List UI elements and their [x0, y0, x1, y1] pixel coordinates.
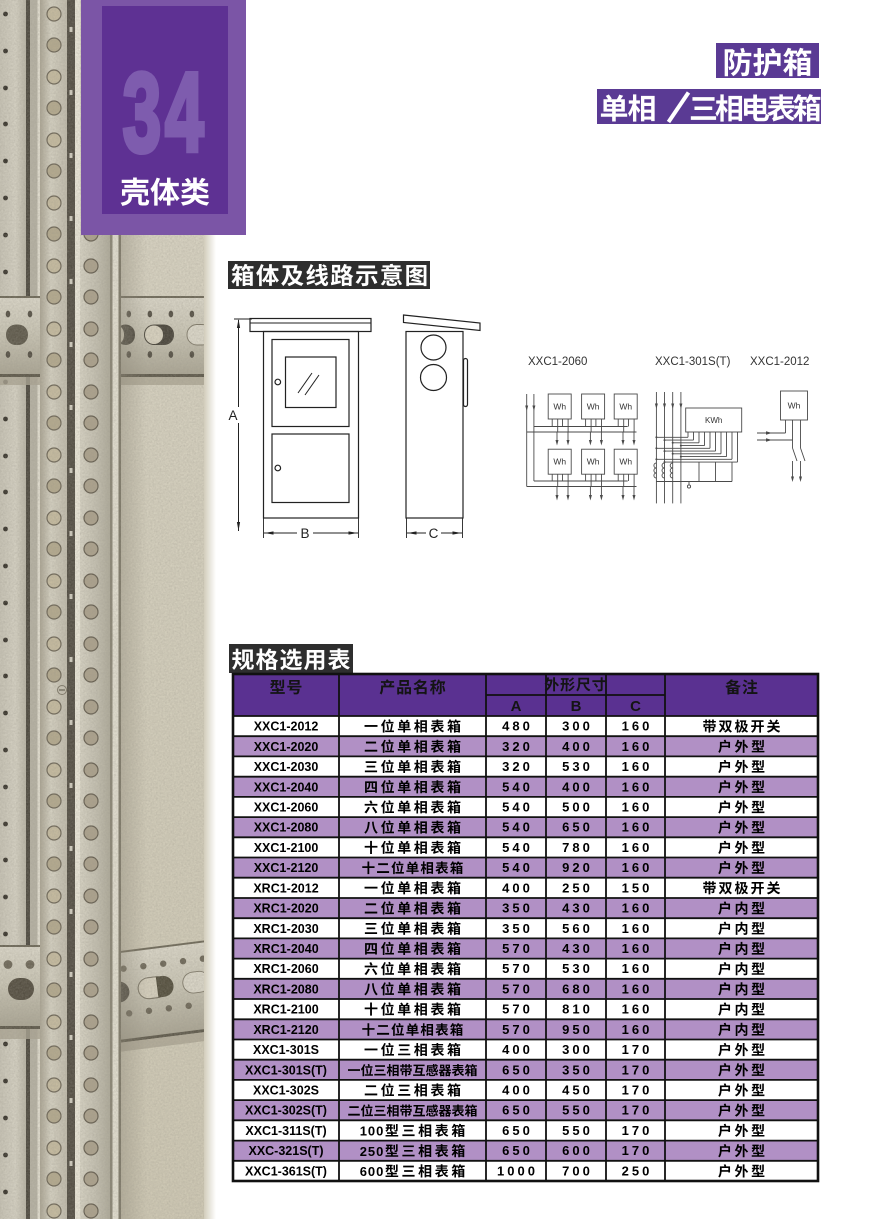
svg-text:600: 600 — [562, 1143, 593, 1158]
svg-text:300: 300 — [562, 719, 593, 734]
svg-text:530: 530 — [562, 759, 593, 774]
svg-text:400: 400 — [562, 779, 593, 794]
svg-text:A: A — [228, 408, 237, 423]
svg-text:250: 250 — [360, 1144, 385, 1159]
svg-text:XXC1-2060: XXC1-2060 — [528, 356, 587, 368]
svg-text:570: 570 — [502, 1022, 533, 1037]
svg-text:B: B — [300, 526, 309, 541]
svg-text:550: 550 — [562, 1123, 593, 1138]
svg-text:100: 100 — [360, 1124, 385, 1139]
svg-text:570: 570 — [502, 941, 533, 956]
svg-text:C: C — [429, 526, 439, 541]
svg-text:XXC1-301S(T): XXC1-301S(T) — [245, 1063, 327, 1077]
svg-text:Wh: Wh — [619, 457, 632, 467]
svg-text:250: 250 — [622, 1163, 653, 1178]
svg-text:570: 570 — [502, 1002, 533, 1017]
svg-text:320: 320 — [502, 759, 533, 774]
svg-text:160: 160 — [622, 800, 653, 815]
svg-text:XRC1-2060: XRC1-2060 — [253, 962, 318, 976]
svg-text:XRC1-2030: XRC1-2030 — [253, 922, 318, 936]
svg-text:650: 650 — [502, 1103, 533, 1118]
svg-text:150: 150 — [622, 880, 653, 895]
svg-text:650: 650 — [502, 1143, 533, 1158]
svg-text:160: 160 — [622, 820, 653, 835]
svg-text:320: 320 — [502, 739, 533, 754]
svg-text:160: 160 — [622, 739, 653, 754]
svg-text:1000: 1000 — [497, 1163, 538, 1178]
svg-text:XXC1-2040: XXC1-2040 — [254, 780, 319, 794]
svg-text:160: 160 — [622, 779, 653, 794]
svg-text:450: 450 — [562, 1083, 593, 1098]
svg-text:XRC1-2120: XRC1-2120 — [253, 1023, 318, 1037]
svg-text:XRC1-2012: XRC1-2012 — [253, 881, 318, 895]
svg-text:XXC1-311S(T): XXC1-311S(T) — [245, 1124, 326, 1138]
svg-text:540: 540 — [502, 800, 533, 815]
svg-text:400: 400 — [502, 1042, 533, 1057]
svg-text:170: 170 — [622, 1062, 653, 1077]
svg-text:560: 560 — [562, 921, 593, 936]
svg-text:650: 650 — [562, 820, 593, 835]
svg-text:XXC1-361S(T): XXC1-361S(T) — [245, 1164, 327, 1178]
svg-text:XXC1-2012: XXC1-2012 — [750, 356, 809, 368]
svg-text:XXC1-2020: XXC1-2020 — [254, 740, 319, 754]
svg-text:XRC1-2040: XRC1-2040 — [253, 942, 318, 956]
svg-text:170: 170 — [622, 1143, 653, 1158]
svg-text:570: 570 — [502, 981, 533, 996]
svg-text:XXC1-302S: XXC1-302S — [253, 1084, 319, 1098]
svg-text:250: 250 — [562, 880, 593, 895]
svg-text:Wh: Wh — [553, 457, 566, 467]
svg-text:Wh: Wh — [587, 402, 600, 412]
svg-text:Wh: Wh — [553, 402, 566, 412]
svg-text:350: 350 — [502, 921, 533, 936]
svg-text:KWh: KWh — [705, 416, 722, 425]
svg-text:XXC-321S(T): XXC-321S(T) — [248, 1144, 323, 1158]
svg-text:XXC1-2012: XXC1-2012 — [254, 720, 319, 734]
svg-text:XXC1-301S(T): XXC1-301S(T) — [655, 356, 731, 368]
svg-text:400: 400 — [502, 1083, 533, 1098]
svg-text:570: 570 — [502, 961, 533, 976]
svg-text:Wh: Wh — [619, 402, 632, 412]
svg-text:160: 160 — [622, 941, 653, 956]
svg-text:480: 480 — [502, 719, 533, 734]
svg-text:34: 34 — [123, 50, 208, 175]
svg-text:160: 160 — [622, 901, 653, 916]
svg-text:430: 430 — [562, 941, 593, 956]
svg-text:550: 550 — [562, 1103, 593, 1118]
svg-text:XXC1-2120: XXC1-2120 — [254, 861, 319, 875]
svg-text:XXC1-301S: XXC1-301S — [253, 1043, 319, 1057]
svg-text:600: 600 — [360, 1164, 385, 1179]
svg-text:XXC1-2030: XXC1-2030 — [254, 760, 319, 774]
svg-text:XXC1-2100: XXC1-2100 — [254, 841, 319, 855]
svg-text:170: 170 — [622, 1123, 653, 1138]
svg-text:650: 650 — [502, 1062, 533, 1077]
svg-text:540: 540 — [502, 860, 533, 875]
svg-text:680: 680 — [562, 981, 593, 996]
svg-text:300: 300 — [562, 1042, 593, 1057]
svg-text:540: 540 — [502, 779, 533, 794]
svg-text:C: C — [630, 698, 641, 715]
svg-text:170: 170 — [622, 1103, 653, 1118]
svg-text:350: 350 — [562, 1062, 593, 1077]
svg-text:XXC1-2080: XXC1-2080 — [254, 821, 319, 835]
svg-text:160: 160 — [622, 1002, 653, 1017]
svg-text:160: 160 — [622, 759, 653, 774]
svg-text:350: 350 — [502, 901, 533, 916]
svg-text:540: 540 — [502, 820, 533, 835]
svg-text:430: 430 — [562, 901, 593, 916]
svg-text:950: 950 — [562, 1022, 593, 1037]
svg-text:160: 160 — [622, 981, 653, 996]
svg-text:810: 810 — [562, 1002, 593, 1017]
svg-text:160: 160 — [622, 840, 653, 855]
svg-text:160: 160 — [622, 860, 653, 875]
svg-text:400: 400 — [502, 880, 533, 895]
svg-text:160: 160 — [622, 719, 653, 734]
svg-text:B: B — [571, 698, 582, 715]
svg-text:540: 540 — [502, 840, 533, 855]
svg-text:530: 530 — [562, 961, 593, 976]
svg-text:160: 160 — [622, 961, 653, 976]
svg-text:XRC1-2020: XRC1-2020 — [253, 902, 318, 916]
svg-text:650: 650 — [502, 1123, 533, 1138]
svg-text:400: 400 — [562, 739, 593, 754]
svg-text:Wh: Wh — [587, 457, 600, 467]
svg-text:170: 170 — [622, 1042, 653, 1057]
svg-text:170: 170 — [622, 1083, 653, 1098]
svg-text:780: 780 — [562, 840, 593, 855]
svg-text:XRC1-2100: XRC1-2100 — [253, 1003, 318, 1017]
svg-text:700: 700 — [562, 1163, 593, 1178]
svg-text:920: 920 — [562, 860, 593, 875]
svg-text:Wh: Wh — [788, 401, 801, 411]
svg-text:160: 160 — [622, 1022, 653, 1037]
svg-text:XRC1-2080: XRC1-2080 — [253, 982, 318, 996]
svg-text:XXC1-302S(T): XXC1-302S(T) — [245, 1104, 327, 1118]
svg-text:160: 160 — [622, 921, 653, 936]
svg-text:A: A — [511, 698, 522, 715]
svg-text:XXC1-2060: XXC1-2060 — [254, 801, 319, 815]
svg-text:500: 500 — [562, 800, 593, 815]
